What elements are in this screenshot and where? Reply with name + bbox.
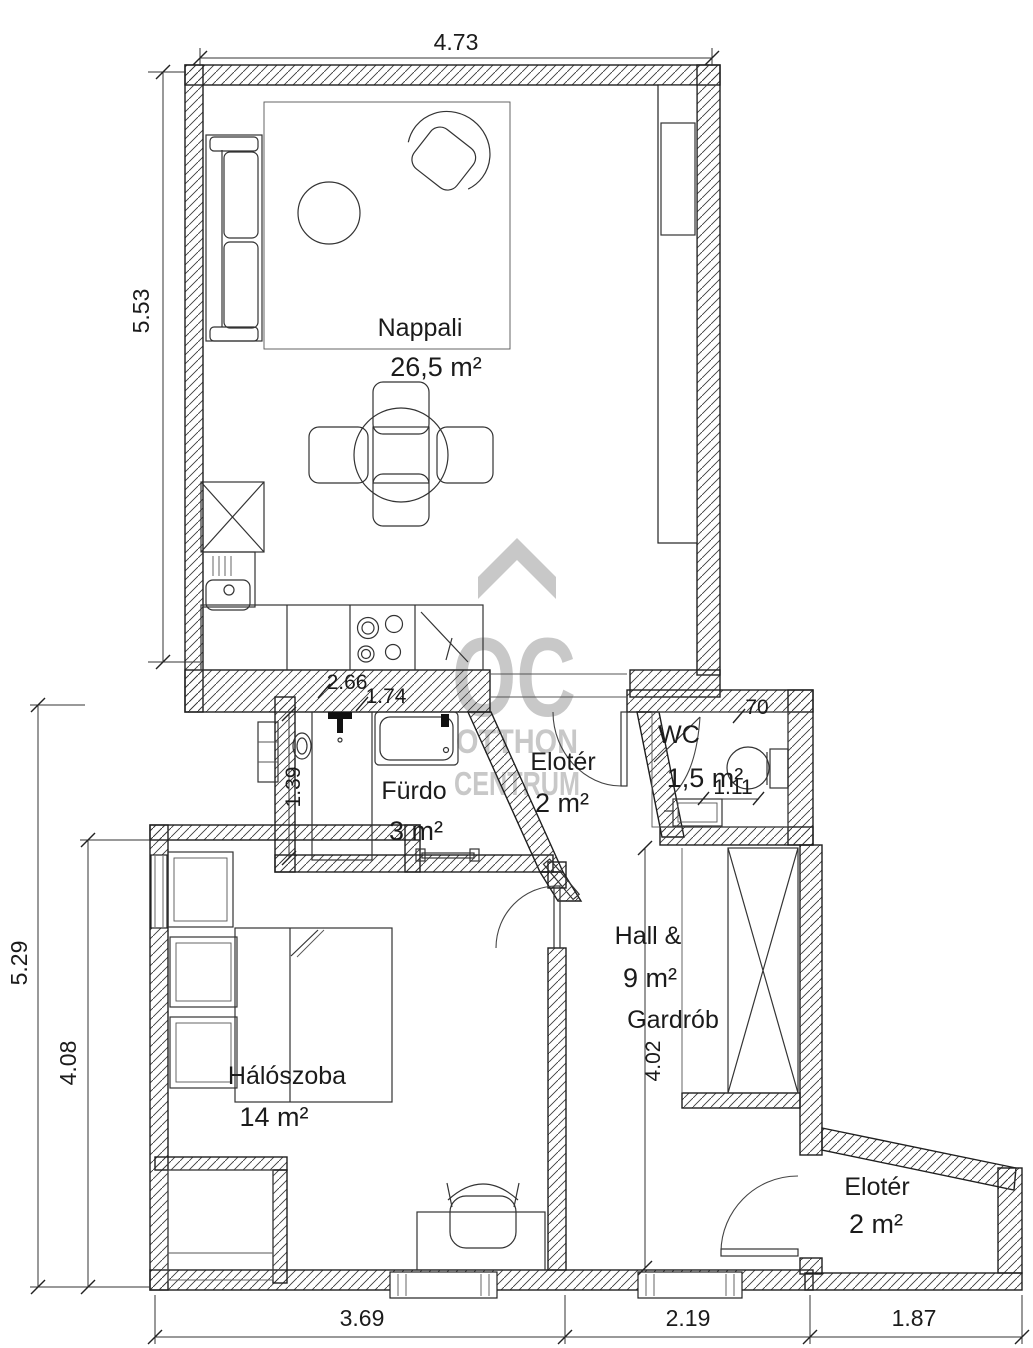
room-label-gardrob: Gardrób xyxy=(627,1006,719,1034)
floor-plan-drawing: OC OTTHON CENTRUM xyxy=(0,0,1033,1348)
living-room-furniture xyxy=(206,95,510,526)
dim-hall-width: 2.19 xyxy=(666,1305,711,1331)
door-entry xyxy=(721,1176,798,1256)
dim-hall-height: 4.02 xyxy=(642,1041,665,1082)
bedroom-furniture xyxy=(168,852,545,1280)
room-label-nappali: Nappali xyxy=(378,314,463,342)
dim-bath-depth: 1.39 xyxy=(282,767,305,808)
door-bedroom xyxy=(496,886,560,948)
watermark-roof-icon xyxy=(478,538,556,599)
fridge xyxy=(201,482,264,552)
room-area-wc: 1,5 m² xyxy=(667,763,744,793)
closet xyxy=(168,852,233,927)
dim-top-width: 4.73 xyxy=(434,29,479,55)
washbasin xyxy=(293,733,311,759)
room-area-hall: 9 m² xyxy=(623,963,677,993)
hall-wardrobe xyxy=(682,848,798,1093)
dim-bedroom-width: 3.69 xyxy=(340,1305,385,1331)
room-area-eloter-inner: 2 m² xyxy=(535,788,589,818)
wc-sink xyxy=(664,799,722,826)
room-area-nappali: 26,5 m² xyxy=(390,352,482,382)
dim-living-height: 5.53 xyxy=(128,289,154,334)
window-living-right-niche xyxy=(658,85,697,543)
dim-bedroom-height: 4.08 xyxy=(55,1041,81,1086)
room-area-eloter-entry: 2 m² xyxy=(849,1209,903,1239)
window-hall-bottom xyxy=(638,1272,742,1298)
kitchen-counter xyxy=(201,605,483,670)
room-label-hall: Hall & xyxy=(615,922,682,950)
window-bedroom-left xyxy=(151,855,167,928)
window-bedroom-bottom xyxy=(390,1272,497,1298)
room-label-eloter-inner: Elotér xyxy=(530,748,595,776)
room-label-wc: WC xyxy=(658,721,700,749)
room-area-haloszoba: 14 m² xyxy=(239,1102,308,1132)
bathtub xyxy=(375,712,458,765)
desk-chair xyxy=(447,1183,519,1248)
room-label-eloter-entry: Elotér xyxy=(844,1173,909,1201)
room-label-furdo: Fürdo xyxy=(381,777,446,805)
dim-kitchen-inner: 1.74 xyxy=(366,685,407,708)
dining-set xyxy=(309,382,493,526)
floor-plan-page: OC OTTHON CENTRUM xyxy=(0,0,1033,1348)
dim-lower-height: 5.29 xyxy=(6,941,32,986)
nightstand-1 xyxy=(170,937,237,1007)
room-label-haloszoba: Hálószoba xyxy=(228,1062,346,1090)
stove xyxy=(358,616,403,663)
kitchen xyxy=(201,482,483,670)
shower-faucet-icon xyxy=(328,712,352,733)
armchair xyxy=(395,95,506,204)
kitchen-sink xyxy=(203,552,255,610)
coffee-table xyxy=(298,182,360,244)
niche-interior xyxy=(168,1170,273,1280)
desk xyxy=(417,1212,545,1270)
dim-wc-door: 70 xyxy=(745,696,768,719)
sofa xyxy=(206,135,262,341)
dim-kitchen-run: 2.66 xyxy=(327,671,368,694)
room-area-furdo: 3 m² xyxy=(389,816,443,846)
dim-entry-width: 1.87 xyxy=(892,1305,937,1331)
